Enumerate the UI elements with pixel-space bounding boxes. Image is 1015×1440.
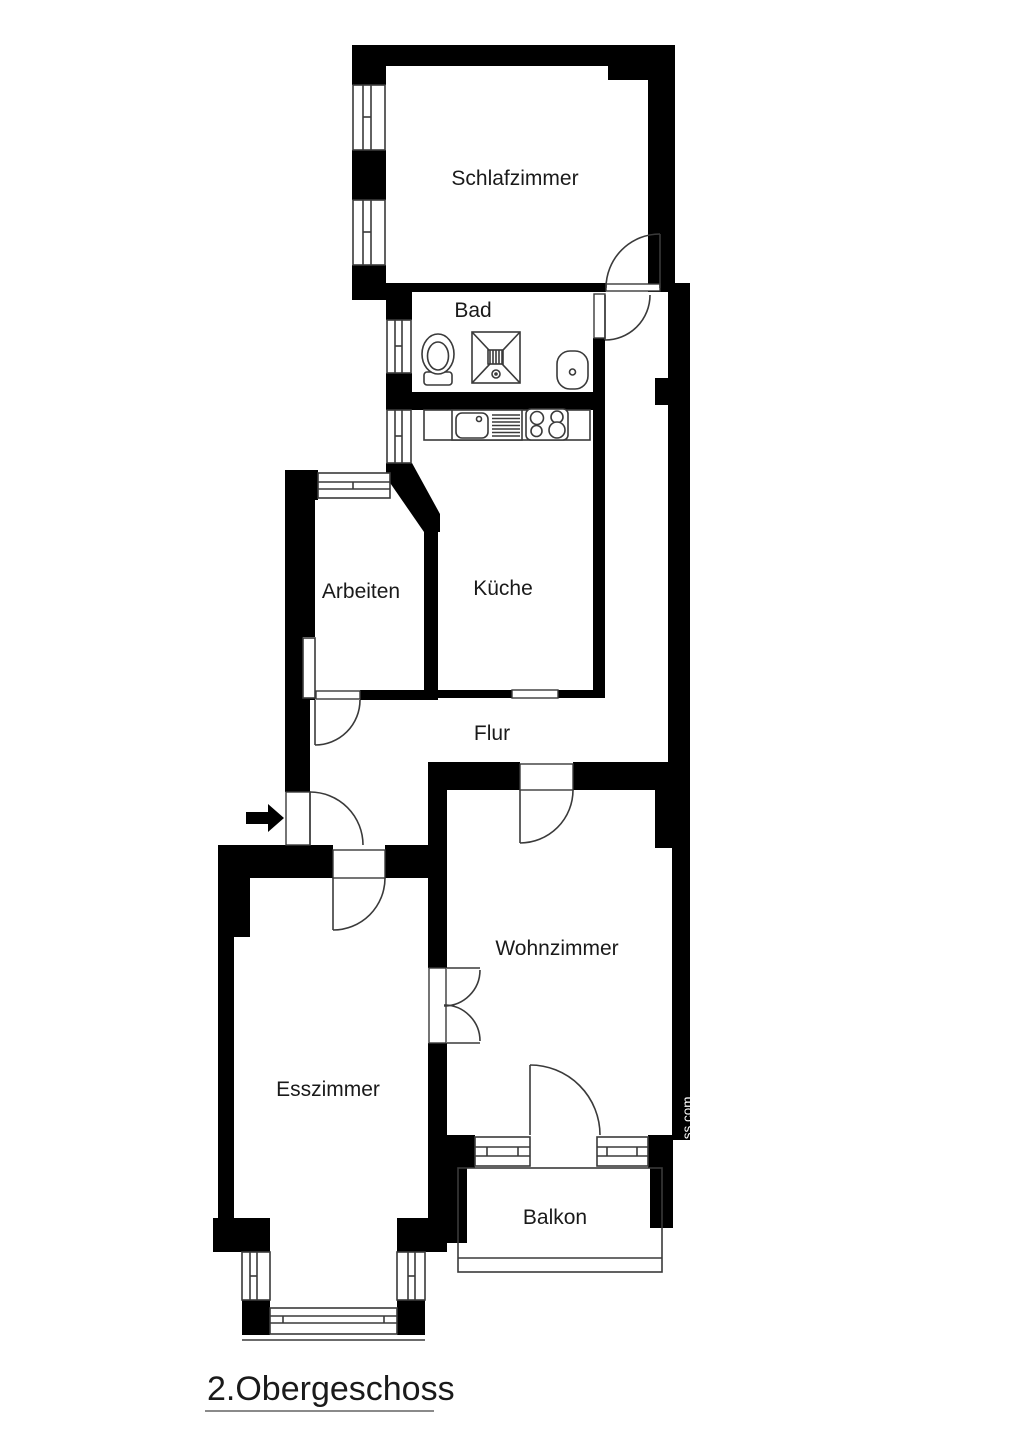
door-opening-schlafzimmer	[606, 284, 660, 291]
door-opening-double-door	[429, 968, 446, 1043]
room-label-balkon: Balkon	[523, 1206, 587, 1229]
door-opening-wohnzimmer	[520, 764, 573, 790]
window-bay-bottom	[242, 1308, 425, 1340]
wall	[285, 500, 315, 637]
window-bay-left	[242, 1252, 270, 1300]
wall	[218, 845, 333, 878]
kitchen-sink-icon	[452, 410, 522, 440]
floor-plan-svg: Schlafzimmer Bad Küche Arbeiten Flur Woh…	[0, 0, 1015, 1440]
wall	[352, 66, 386, 85]
wall-niche	[303, 638, 315, 698]
wall	[218, 878, 250, 937]
wall	[218, 937, 234, 1223]
room-label-esszimmer: Esszimmer	[276, 1078, 380, 1101]
wall	[428, 762, 520, 790]
window-wohnzimmer-left	[475, 1137, 530, 1166]
wall	[428, 1043, 447, 1223]
window-bay-right	[397, 1252, 425, 1300]
wall	[285, 470, 318, 500]
wall	[285, 700, 310, 792]
sink-icon	[557, 351, 588, 389]
room-label-bad: Bad	[454, 299, 491, 322]
door-bad	[605, 295, 650, 340]
room-label-kueche: Küche	[473, 577, 533, 600]
room-label-wohnzimmer: Wohnzimmer	[495, 937, 618, 960]
fixtures	[422, 332, 590, 440]
wall	[655, 762, 690, 848]
floor-title: 2.Obergeschoss	[207, 1370, 455, 1408]
wall	[360, 690, 424, 700]
door-double-swing	[444, 968, 480, 1043]
door-arbeiten	[315, 700, 360, 745]
toilet-icon	[422, 334, 454, 385]
wall	[447, 1135, 475, 1168]
wall	[386, 292, 412, 320]
window-bad	[387, 320, 411, 373]
wall	[672, 848, 690, 1140]
wall	[558, 690, 605, 698]
wall	[352, 45, 675, 66]
room-label-schlafzimmer: Schlafzimmer	[451, 167, 578, 190]
wall	[386, 392, 605, 410]
door-esszimmer	[333, 878, 385, 930]
wall-bay-corner	[242, 1300, 270, 1335]
door-entrance	[310, 792, 363, 845]
wall-chimney-stub	[655, 378, 668, 405]
wall	[424, 530, 438, 700]
wall	[428, 790, 447, 968]
window-wohnzimmer-right	[597, 1137, 648, 1166]
watermark: www.grundriss.com	[680, 1096, 695, 1214]
wall-bay-pillar	[397, 1218, 447, 1252]
room-label-flur: Flur	[474, 722, 510, 745]
door-opening-entrance	[286, 792, 310, 845]
door-balkon	[530, 1065, 600, 1135]
wall-diagonal	[386, 463, 440, 532]
wall	[383, 283, 606, 292]
window-arbeiten	[318, 473, 390, 498]
room-label-arbeiten: Arbeiten	[322, 580, 400, 603]
window-kueche	[387, 410, 411, 463]
stove-icon	[526, 409, 568, 440]
wall-balcony	[447, 1168, 467, 1243]
door-opening-bad	[594, 294, 605, 338]
door-wohnzimmer	[520, 790, 573, 843]
wall	[352, 150, 386, 200]
window-schlafzimmer-2	[353, 200, 385, 265]
wall-bay-corner	[397, 1300, 425, 1335]
wall	[648, 66, 675, 292]
shower-icon	[472, 332, 520, 383]
wall	[352, 265, 386, 300]
window-schlafzimmer-1	[353, 85, 385, 150]
wall	[593, 338, 605, 690]
door-opening-kueche	[512, 690, 558, 698]
wall	[438, 690, 512, 698]
wall	[648, 1135, 673, 1168]
door-opening-esszimmer	[333, 850, 385, 878]
wall-bay-pillar	[213, 1218, 270, 1252]
floor-plan-page: Schlafzimmer Bad Küche Arbeiten Flur Woh…	[0, 0, 1015, 1440]
door-opening-arbeiten	[316, 691, 360, 699]
entrance-arrow-icon	[246, 804, 284, 832]
wall	[668, 283, 690, 762]
